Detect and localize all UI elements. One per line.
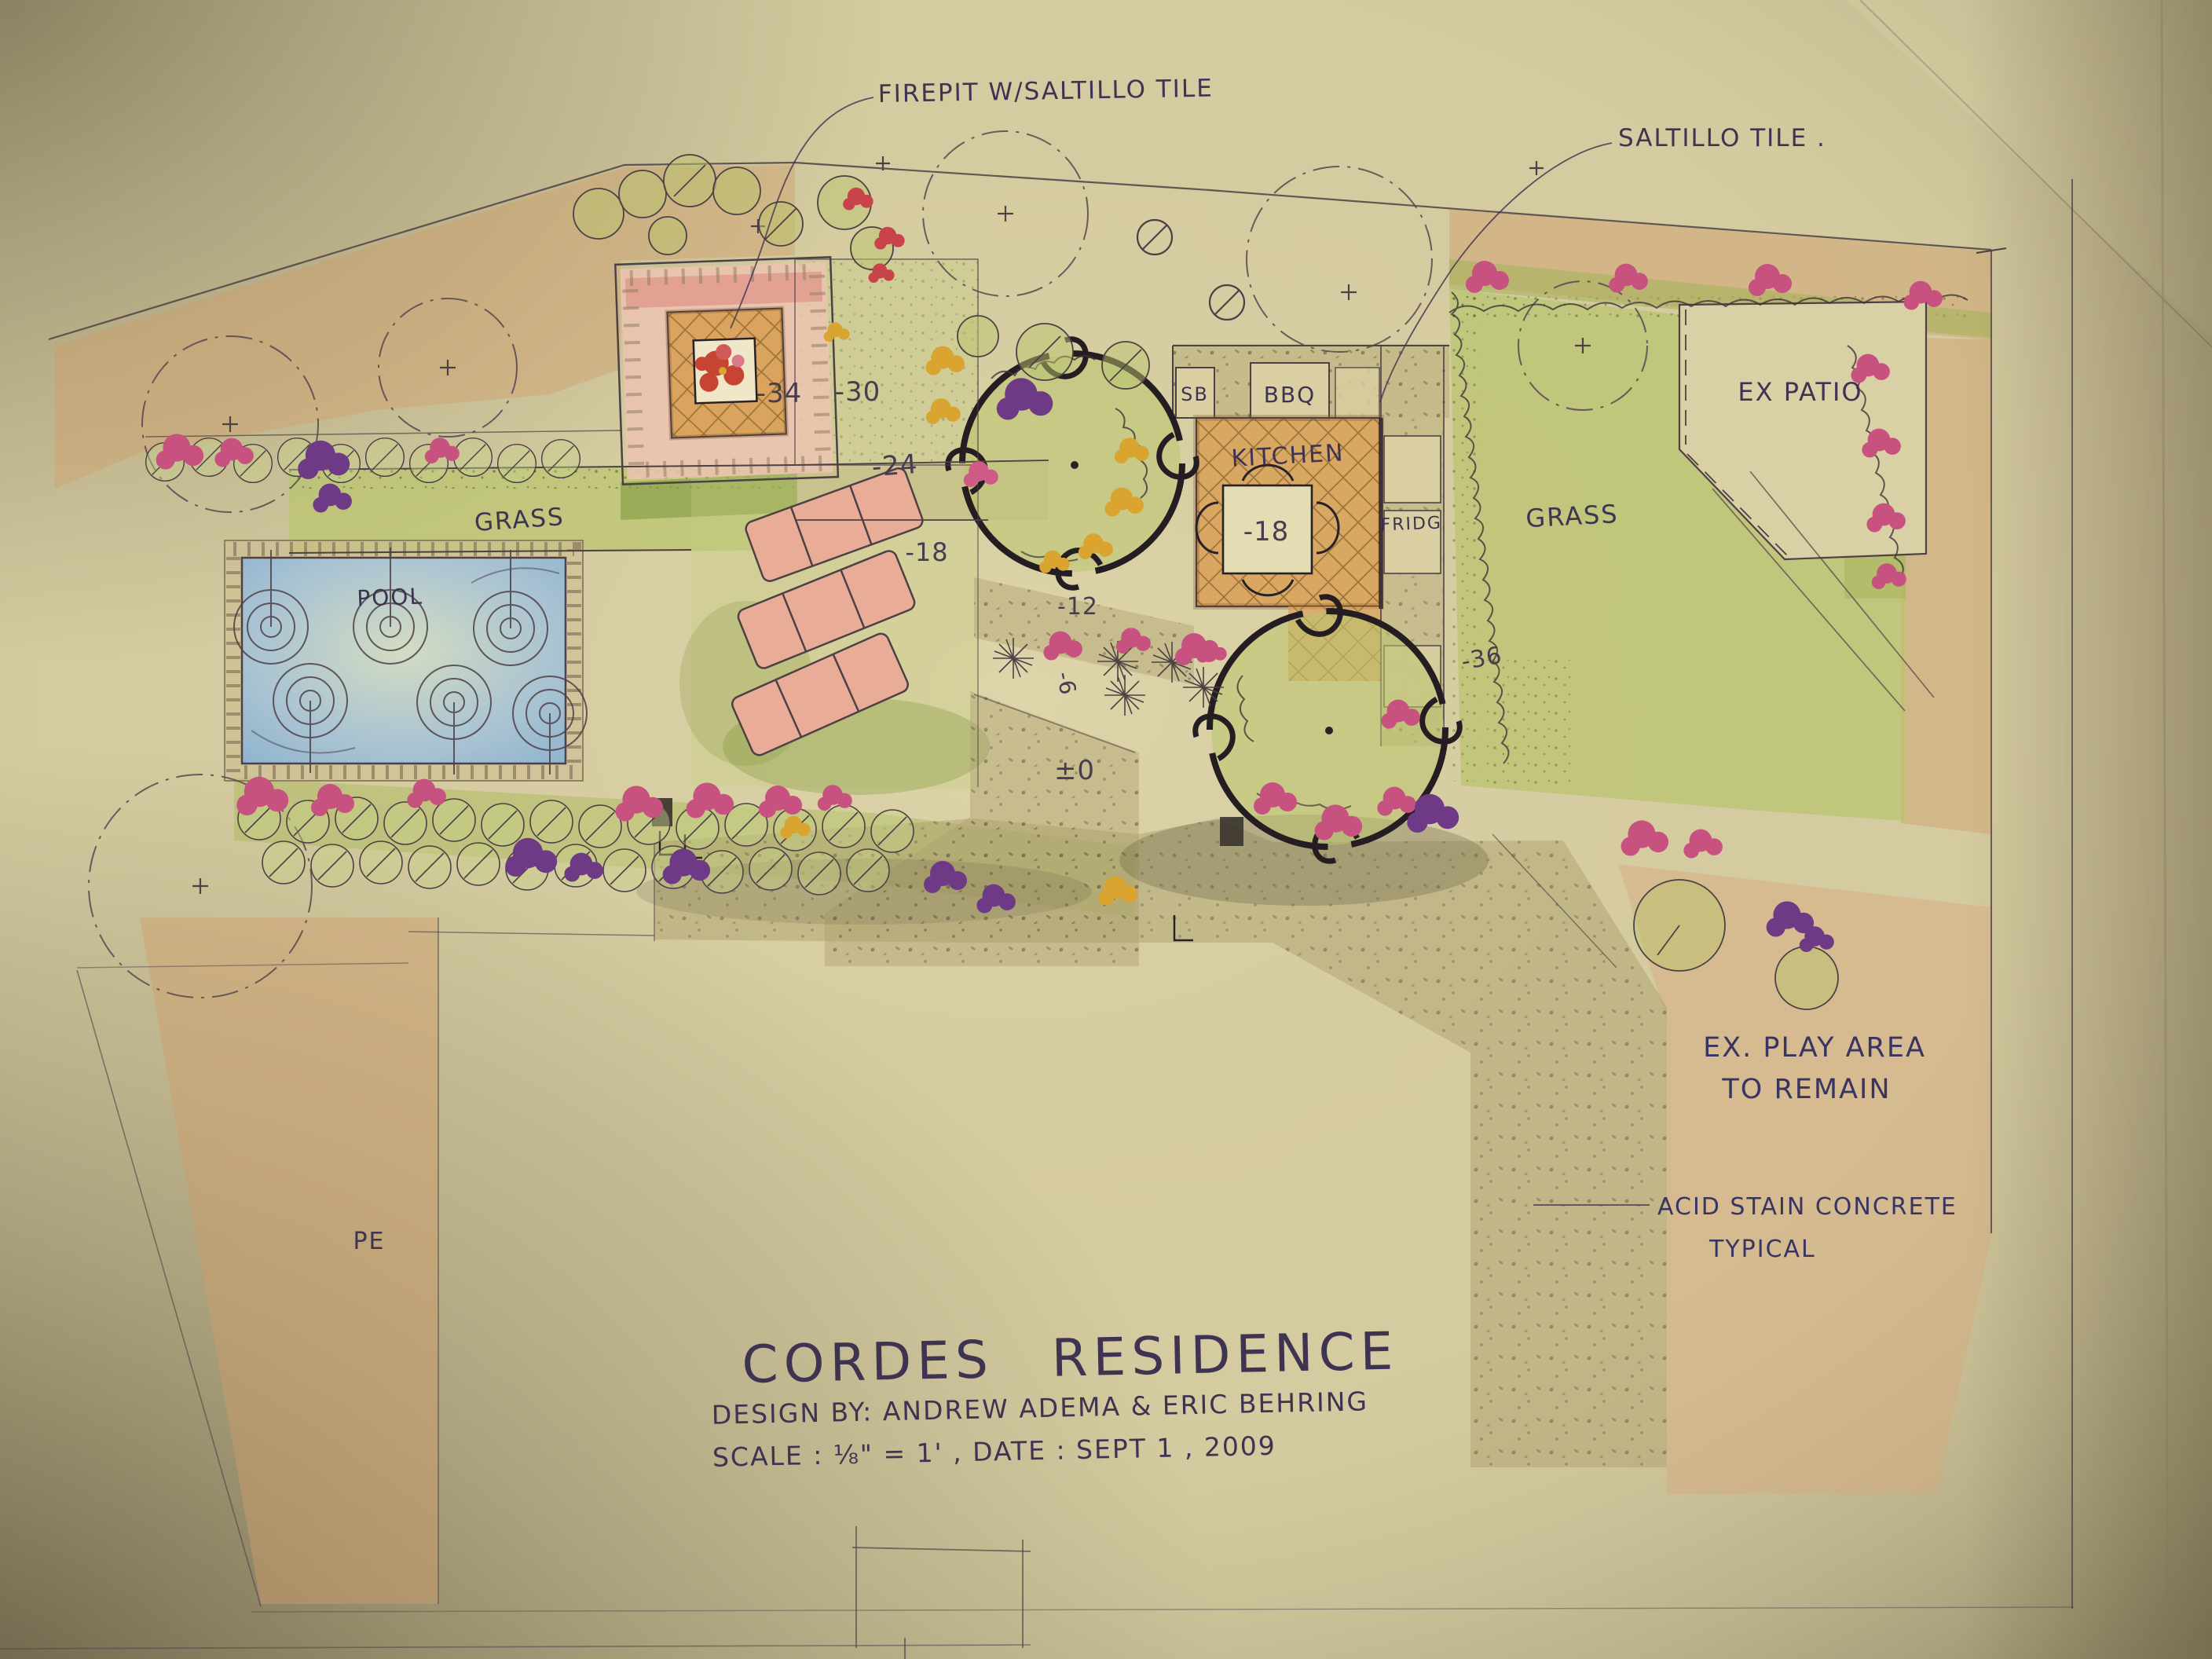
pe-note: PE (353, 1228, 385, 1255)
elev-planter-walk: -12 (1057, 593, 1098, 621)
elev-kitchen-table: -18 (1243, 516, 1290, 548)
acid-stain-note-1: ACID STAIN CONCRETE (1657, 1193, 1957, 1221)
saltillo-annotation: SALTILLO TILE . (1618, 124, 1826, 152)
ex-patio-label: EX PATIO (1738, 377, 1862, 407)
pool (225, 540, 587, 781)
elev-terrace: -30 (835, 376, 881, 408)
sink-label: SB (1181, 383, 1209, 405)
elev-lounge: -18 (905, 537, 948, 567)
acid-stain-note-2: TYPICAL (1708, 1236, 1816, 1263)
firepit-annotation: FIREPIT W/SALTILLO TILE (878, 75, 1214, 108)
photo-of-landscape-plan: FIREPIT W/SALTILLO TILE SALTILLO TILE . … (0, 0, 2212, 1659)
bbq-label: BBQ (1264, 382, 1316, 408)
pool-label: POOL (357, 584, 424, 612)
elev-upper-walk: -24 (871, 449, 919, 483)
firepit-structure (615, 257, 838, 484)
play-area-note-2: TO REMAIN (1721, 1074, 1891, 1105)
fridge-label: FRIDG (1380, 514, 1442, 536)
elev-firepit: -34 (756, 378, 803, 409)
grass-right-label: GRASS (1525, 499, 1619, 533)
play-area-note-1: EX. PLAY AREA (1703, 1032, 1926, 1064)
elev-datum: ±0 (1054, 755, 1095, 786)
